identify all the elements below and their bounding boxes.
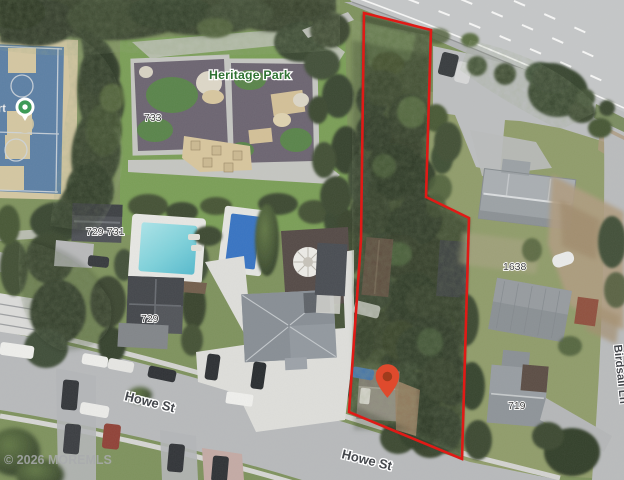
svg-text:719: 719 bbox=[508, 400, 526, 412]
svg-text:1638: 1638 bbox=[503, 261, 527, 273]
svg-text:733: 733 bbox=[144, 112, 162, 124]
svg-text:729-731: 729-731 bbox=[86, 226, 125, 238]
svg-text:© 2026 MOREMLS: © 2026 MOREMLS bbox=[4, 453, 112, 467]
svg-text:rt: rt bbox=[0, 103, 6, 115]
svg-text:Heritage Park: Heritage Park bbox=[209, 68, 291, 82]
svg-text:729: 729 bbox=[141, 313, 159, 325]
